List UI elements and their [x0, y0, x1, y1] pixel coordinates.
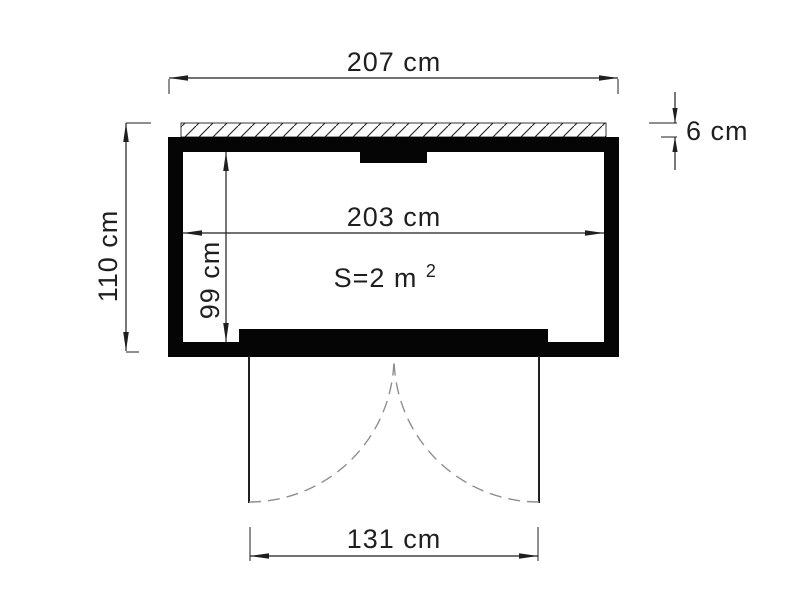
- door-threshold-ledge: [239, 329, 548, 343]
- arrowhead-right: [585, 230, 604, 236]
- area-label: S=2 m 2: [334, 261, 437, 293]
- arrowhead-up: [123, 123, 129, 142]
- roof-hatch-strip: [181, 123, 606, 137]
- dim-overall-height: 110 cm: [93, 123, 151, 352]
- door-swing-arc-left: [249, 357, 394, 502]
- dim-inner-depth: 99 cm: [195, 152, 229, 342]
- dim-roof-thickness: 6 cm: [649, 92, 749, 170]
- arrowhead-down: [672, 108, 677, 123]
- arrowhead-up: [672, 137, 677, 152]
- arrowhead-down: [123, 332, 129, 351]
- dim-label-inner-depth: 99 cm: [195, 241, 225, 320]
- arrowhead-up: [223, 152, 229, 171]
- arrowhead-left: [183, 230, 202, 236]
- arrowhead-left: [250, 553, 269, 559]
- dim-label-door-opening: 131 cm: [347, 524, 442, 554]
- outer-walls: [168, 137, 619, 357]
- arrowhead-right: [599, 75, 618, 81]
- top-wall-block: [360, 151, 427, 163]
- dim-inner-width: 203 cm: [183, 202, 604, 236]
- floor-plan-canvas: 207 cm 110 cm 6 cm 203 cm: [0, 0, 800, 600]
- door-swing-arcs: [249, 357, 539, 502]
- door-swing-arc-right: [394, 357, 539, 502]
- arrowhead-left: [169, 75, 188, 81]
- dim-label-overall-width: 207 cm: [347, 47, 442, 77]
- arrowhead-down: [223, 323, 229, 342]
- door-leaves: [249, 356, 539, 503]
- dim-label-inner-width: 203 cm: [347, 202, 442, 232]
- dim-label-overall-height: 110 cm: [93, 210, 123, 303]
- arrowhead-right: [519, 553, 538, 559]
- dim-overall-width: 207 cm: [169, 47, 618, 94]
- dim-door-opening: 131 cm: [250, 524, 538, 561]
- dim-label-roof-thickness: 6 cm: [686, 116, 749, 146]
- floor-plan-drawing: 207 cm 110 cm 6 cm 203 cm: [0, 0, 800, 600]
